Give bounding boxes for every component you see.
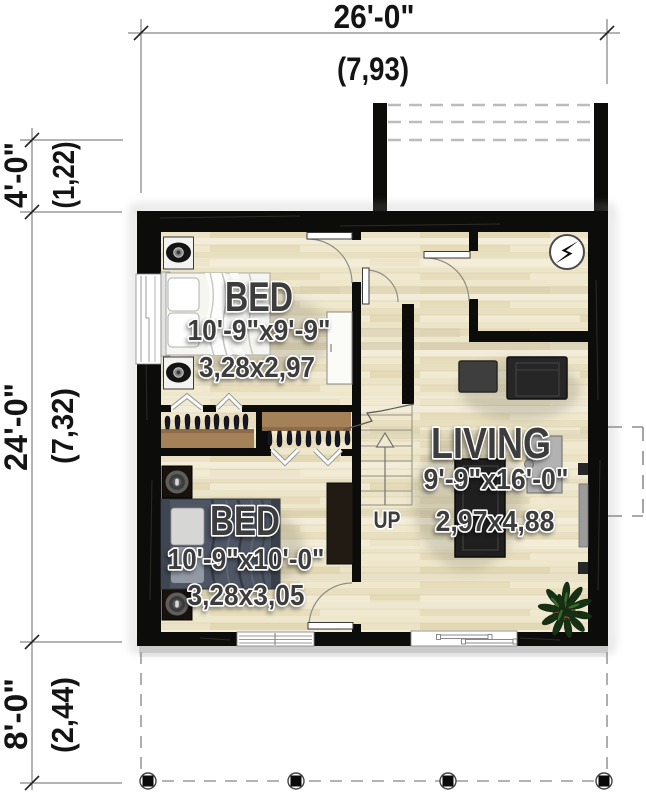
svg-text:(2,44): (2,44) — [45, 677, 80, 753]
svg-text:BED: BED — [210, 497, 280, 544]
svg-text:BED: BED — [225, 273, 293, 320]
svg-text:10'-9"x10'-0": 10'-9"x10'-0" — [168, 544, 325, 576]
svg-text:4'-0": 4'-0" — [0, 142, 34, 208]
svg-text:26'-0": 26'-0" — [334, 0, 415, 35]
svg-text:24'-0": 24'-0" — [0, 383, 34, 471]
svg-text:(1,22): (1,22) — [46, 142, 81, 209]
svg-text:LIVING: LIVING — [431, 419, 551, 468]
svg-text:9'-9"x16'-0": 9'-9"x16'-0" — [424, 464, 569, 496]
svg-text:3,28x3,05: 3,28x3,05 — [188, 580, 305, 612]
svg-text:8'-0": 8'-0" — [0, 678, 34, 750]
svg-text:(7,93): (7,93) — [337, 51, 409, 87]
svg-text:(7,32): (7,32) — [45, 388, 80, 464]
svg-text:3,28x2,97: 3,28x2,97 — [199, 352, 315, 384]
svg-text:2,97x4,88: 2,97x4,88 — [436, 506, 555, 538]
svg-text:10'-9"x9'-9": 10'-9"x9'-9" — [188, 315, 331, 347]
svg-text:UP: UP — [374, 507, 401, 534]
